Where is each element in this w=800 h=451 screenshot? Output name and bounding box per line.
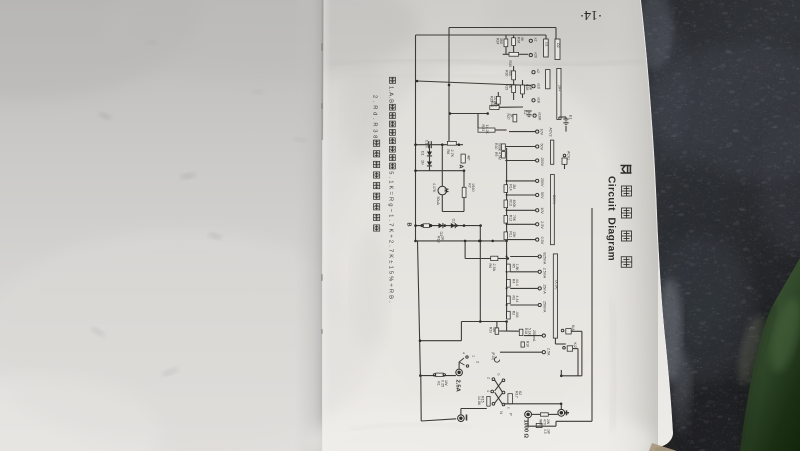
svg-text:R29: R29 (505, 84, 509, 90)
svg-text:1.8K: 1.8K (515, 264, 519, 272)
svg-text:4.44: 4.44 (515, 296, 519, 303)
svg-text:x10K: x10K (538, 112, 542, 121)
svg-text:0.5: 0.5 (543, 429, 547, 434)
svg-text:4: 4 (486, 390, 490, 392)
svg-text:x2: x2 (536, 69, 540, 73)
svg-text:1K: 1K (441, 236, 445, 241)
svg-text:.444: .444 (515, 311, 519, 318)
svg-text:2: 2 (487, 377, 491, 379)
svg-text:0.5V: 0.5V (540, 237, 544, 245)
svg-text:5W: 5W (492, 327, 496, 333)
svg-text:R27: R27 (506, 114, 510, 120)
svg-text:4.17K: 4.17K (432, 183, 436, 193)
svg-text:Ω2: Ω2 (556, 43, 560, 48)
svg-text:62: 62 (518, 391, 522, 395)
svg-text:2.5A: 2.5A (455, 380, 461, 393)
svg-text:900: 900 (508, 70, 512, 76)
svg-text:25mA: 25mA (543, 284, 547, 294)
svg-text:R34: R34 (517, 37, 521, 43)
svg-text:1: 1 (472, 355, 476, 357)
svg-text:·14·: ·14· (580, 8, 603, 23)
svg-text:K(A): K(A) (571, 325, 575, 332)
svg-text:14.8K: 14.8K (477, 396, 481, 406)
svg-text:x1K: x1K (537, 97, 541, 104)
svg-text:D1: D1 (421, 151, 425, 156)
svg-text:0.25: 0.25 (440, 380, 444, 387)
svg-text:R12: R12 (509, 215, 513, 221)
svg-text:360: 360 (499, 38, 503, 44)
svg-text:R10: R10 (494, 143, 498, 149)
svg-text:DCV1: DCV1 (552, 195, 556, 204)
svg-text:2A+: 2A+ (558, 85, 562, 91)
svg-text:43K: 43K (494, 101, 498, 108)
svg-text:50V: 50V (540, 192, 544, 199)
svg-text:470: 470 (542, 419, 546, 425)
svg-text:900K: 900K (498, 143, 502, 152)
svg-text:2.5V: 2.5V (540, 221, 544, 229)
svg-text:2.7K: 2.7K (450, 150, 454, 158)
svg-text:B25mA: B25mA (543, 253, 547, 265)
svg-text:R3: R3 (511, 296, 515, 301)
svg-text:R33: R33 (508, 61, 512, 67)
svg-text:R20: R20 (489, 327, 493, 333)
svg-text:R1: R1 (437, 381, 441, 386)
svg-text:36: 36 (520, 37, 524, 41)
svg-text:48*: 48* (467, 155, 471, 161)
svg-text:10V: 10V (540, 207, 544, 214)
svg-text:Ω: Ω (523, 434, 529, 439)
svg-text:(P10): (P10) (491, 352, 495, 360)
svg-text:14.2K: 14.2K (485, 125, 489, 135)
svg-text:50uA: 50uA (436, 197, 440, 206)
svg-text:5.1K=Rg~1.7K+2.7K±15%+RB.: 5.1K=Rg~1.7K+2.7K±15%+RB. (388, 171, 394, 305)
svg-text:2: 2 (476, 361, 480, 363)
svg-text:R4: R4 (511, 279, 515, 284)
svg-text:1940: 1940 (471, 183, 475, 191)
svg-text:R28: R28 (525, 84, 529, 90)
svg-text:B: B (406, 223, 412, 227)
svg-text:2M: 2M (512, 184, 516, 189)
svg-text:1.A.B: 1.A.B (388, 86, 394, 104)
svg-text:R14: R14 (509, 184, 513, 190)
svg-text:Ω1: Ω1 (545, 42, 549, 47)
svg-text:WH1: WH1 (539, 419, 543, 427)
svg-text:10V: 10V (540, 129, 544, 136)
svg-text:N: N (499, 411, 504, 414)
svg-text:2.5A: 2.5A (547, 348, 551, 356)
svg-text:R17: R17 (515, 391, 519, 398)
svg-text:250mA: 250mA (543, 301, 547, 313)
svg-text:90K: 90K (529, 84, 533, 91)
svg-text:Circuit Diagram: Circuit Diagram (606, 176, 617, 261)
svg-text:50V: 50V (540, 144, 544, 151)
svg-text:250V: 250V (540, 178, 544, 187)
svg-text:R2: R2 (511, 311, 515, 316)
svg-text:x10: x10 (537, 83, 541, 89)
svg-text:R26: R26 (490, 101, 494, 107)
svg-text:R19: R19 (437, 236, 441, 243)
svg-text:R8: R8 (446, 150, 450, 155)
svg-text:M: M (443, 188, 449, 192)
svg-text:2.5A: 2.5A (492, 264, 496, 272)
svg-text:ACV2: ACV2 (549, 127, 553, 136)
svg-text:K(2): K(2) (573, 343, 577, 349)
svg-text:250V: 250V (540, 158, 544, 167)
svg-text:2.5mA: 2.5mA (543, 268, 547, 279)
svg-text:R6: R6 (488, 264, 492, 269)
svg-text:R30: R30 (505, 70, 509, 76)
svg-text:R24: R24 (496, 38, 500, 44)
svg-text:1W: 1W (444, 380, 448, 386)
svg-text:5.1K: 5.1K (527, 328, 531, 336)
svg-text:400K: 400K (512, 200, 516, 209)
svg-text:75K: 75K (512, 215, 516, 222)
svg-text:4.5M: 4.5M (498, 152, 502, 160)
svg-text:44.4: 44.4 (515, 279, 519, 286)
svg-text:R9: R9 (494, 152, 498, 157)
svg-text:x2: x2 (534, 38, 538, 42)
svg-text:R5: R5 (511, 264, 515, 269)
svg-text:2W: 2W (546, 419, 550, 425)
svg-text:D1: D1 (452, 219, 456, 224)
svg-text:A: A (458, 165, 464, 169)
svg-text:4: 4 (462, 352, 466, 354)
svg-text:2.Rd.R38: 2.Rd.R38 (372, 95, 378, 141)
svg-text:R23: R23 (481, 125, 485, 132)
svg-text:P: P (509, 413, 514, 416)
svg-text:c: c (507, 407, 511, 409)
svg-text:1K: 1K (510, 114, 514, 119)
svg-text:R13: R13 (509, 200, 513, 206)
svg-text:DC(A): DC(A) (555, 280, 559, 289)
svg-text:R11: R11 (509, 231, 513, 237)
svg-text:E2: E2 (523, 110, 527, 114)
svg-text:R16: R16 (526, 341, 530, 347)
svg-text:b: b (497, 374, 501, 376)
svg-text:1N: 1N (421, 160, 425, 165)
svg-text:9K: 9K (508, 84, 512, 89)
svg-text:R7: R7 (468, 183, 472, 188)
svg-text:C1m: C1m (425, 140, 429, 148)
svg-text:x20: x20 (534, 52, 538, 58)
svg-text:ACV1: ACV1 (567, 151, 571, 160)
svg-text:E1: E1 (569, 115, 573, 120)
svg-text:15K: 15K (512, 231, 516, 238)
svg-text:R18: R18 (524, 328, 528, 334)
